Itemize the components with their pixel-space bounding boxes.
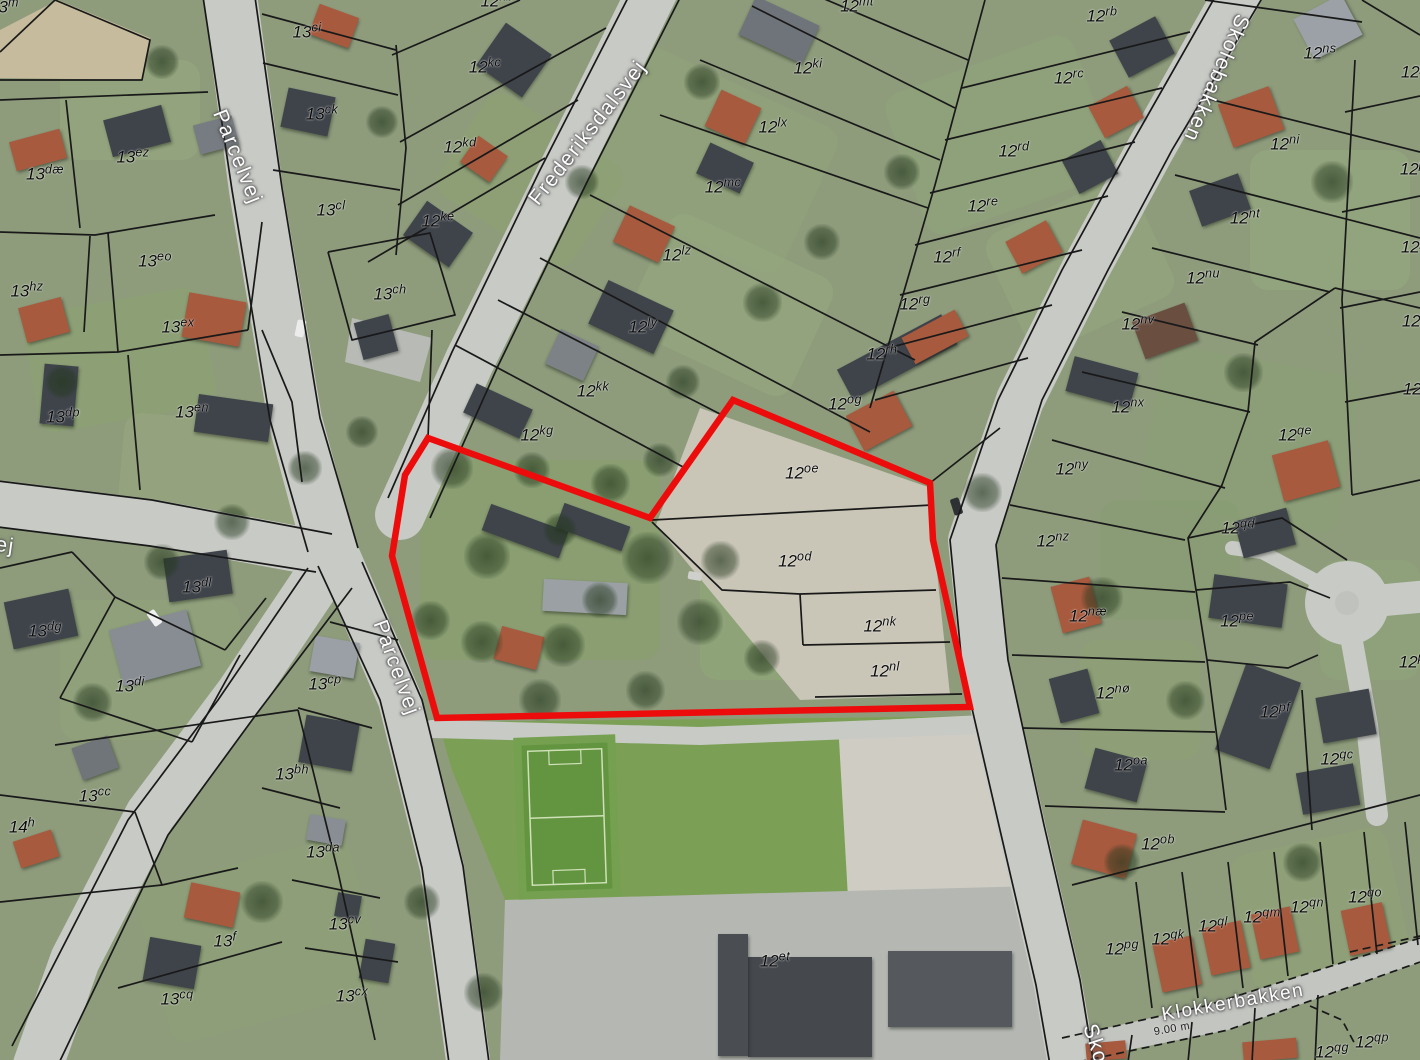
tree [1224,353,1263,392]
road-roundabout-east-stub [1386,596,1420,600]
building [1315,689,1376,744]
building [298,715,360,772]
building [143,937,202,989]
tree [1081,577,1123,619]
tree [464,973,503,1012]
tree [744,640,780,676]
tree [541,623,585,667]
building [1242,1038,1298,1060]
tree [591,464,630,503]
tree [884,154,920,190]
tree [144,544,180,580]
tree [411,601,450,640]
tree [1311,161,1353,203]
building [334,892,362,920]
tree [963,473,1002,512]
tree [214,504,250,540]
tree [288,451,322,485]
tree [73,683,112,722]
building [718,934,748,1056]
tree [582,582,618,618]
tree [565,165,599,199]
tree [1104,844,1140,880]
tree [431,447,473,489]
tree [677,599,724,646]
building [888,951,1012,1027]
tree [404,884,440,920]
tree [45,365,79,399]
aerial-cadastral-map[interactable]: 13m13ci13ck13cl13dæ13ez13eo13ch13hz13ex1… [0,0,1420,1060]
tree [701,541,740,580]
tree [622,532,674,584]
tree [543,513,577,547]
roundabout-island [1335,591,1359,615]
tree [684,64,720,100]
football-pitch [513,734,621,899]
tree [145,45,179,79]
tree [666,365,700,399]
tree [241,881,283,923]
tree [519,679,561,721]
tree [626,671,665,710]
tree [366,106,397,137]
building [748,957,872,1057]
tree [1166,681,1205,720]
tree [1283,843,1322,882]
tree [346,416,377,447]
building [1085,1040,1126,1060]
ground-tan-field [0,0,150,80]
tree [514,452,550,488]
tree [461,621,503,663]
tree [804,224,840,260]
tree [643,443,677,477]
building [309,635,360,678]
tree [743,283,782,322]
tree [464,533,511,580]
